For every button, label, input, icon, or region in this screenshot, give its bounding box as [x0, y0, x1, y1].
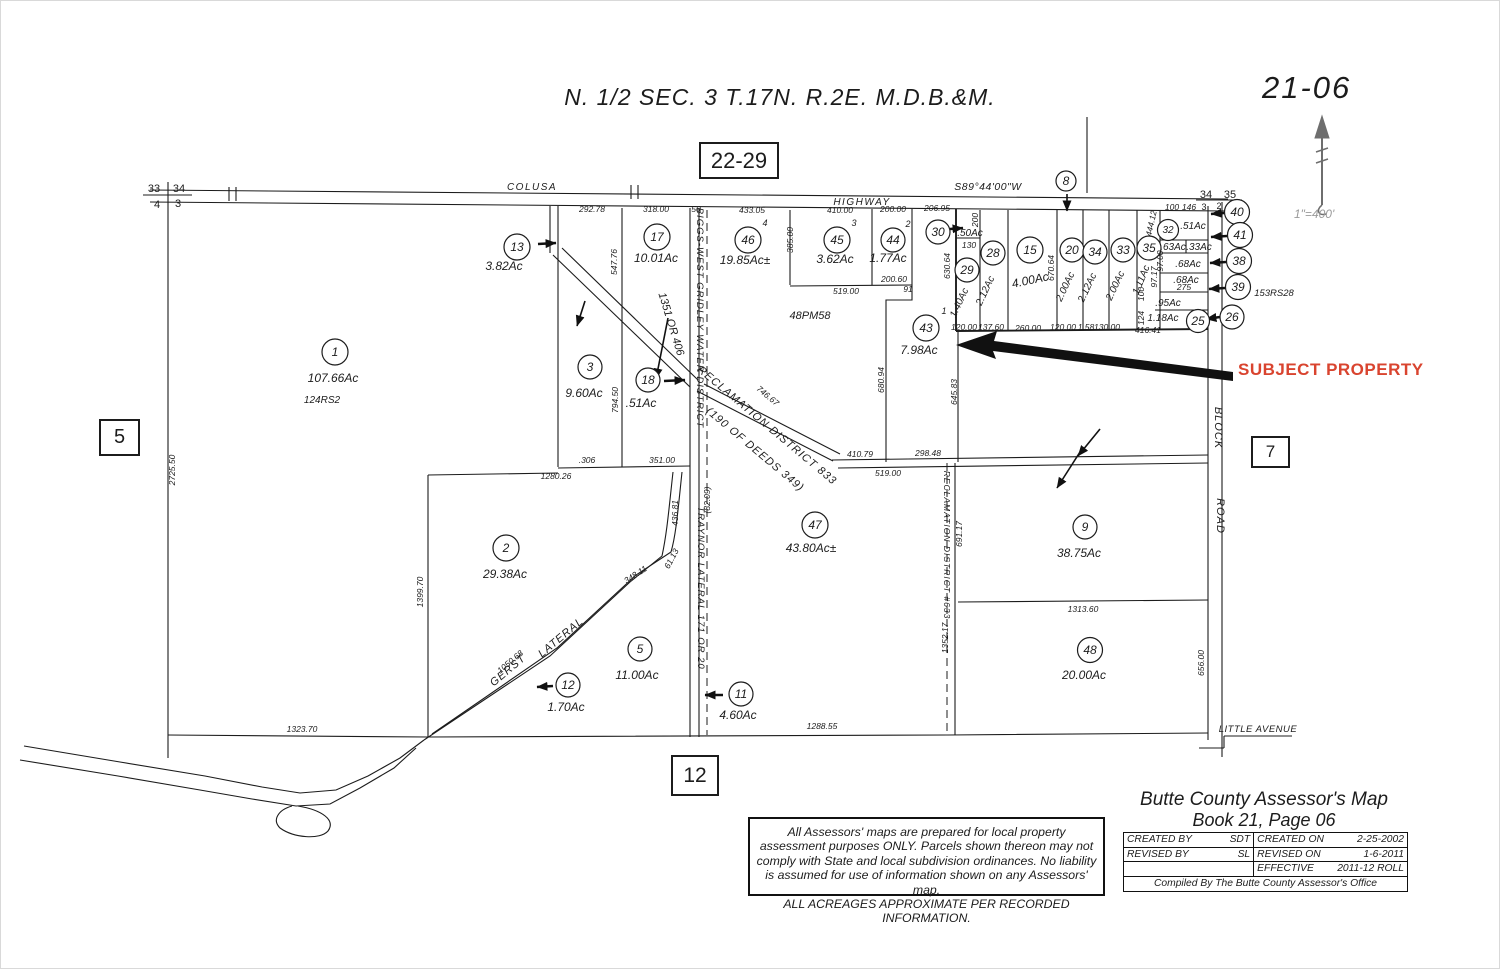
svg-text:.51Ac: .51Ac [626, 396, 657, 410]
rd633-label: RECLAMATION DISTRICT #633 [942, 471, 952, 620]
acreage-label: .33Ac [1186, 242, 1212, 253]
svg-text:680.94: 680.94 [876, 367, 886, 393]
svg-text:1288.55: 1288.55 [807, 721, 838, 731]
svg-text:25: 25 [1190, 314, 1205, 328]
svg-text:91: 91 [903, 284, 913, 294]
traynor-lateral-label: TRAYNOR LATERAL 171 OR 20 [695, 506, 706, 669]
svg-text:1: 1 [941, 306, 946, 316]
disclaimer-line: All Assessors' maps are prepared for loc… [750, 825, 1103, 839]
svg-text:746.67: 746.67 [755, 384, 782, 409]
parcel-48: 48 20.00Ac [1061, 638, 1106, 683]
parcel-41: 41 [1228, 223, 1253, 248]
svg-text:130: 130 [962, 240, 976, 250]
book-page-title: Book 21, Page 06 [1108, 810, 1420, 831]
arrow-to-parcel-18 [664, 380, 685, 381]
svg-text:3.62Ac: 3.62Ac [816, 252, 853, 266]
svg-text:519.00: 519.00 [833, 286, 859, 296]
svg-text:120.00: 120.00 [951, 322, 977, 332]
svg-text:3: 3 [175, 198, 181, 210]
subject-property-label: SUBJECT PROPERTY [1238, 360, 1438, 380]
svg-text:100: 100 [1136, 287, 1146, 301]
svg-text:318.00: 318.00 [643, 204, 669, 214]
canal-flow-arrow-1 [577, 301, 585, 326]
svg-text:3: 3 [851, 218, 856, 228]
road-label-block: BLOCK [1212, 407, 1224, 449]
arrow-to-parcel-12 [537, 686, 553, 687]
svg-text:1352.17: 1352.17 [940, 622, 950, 653]
svg-text:691.17: 691.17 [954, 521, 964, 547]
parcel-2: 2 29.38Ac [482, 535, 527, 581]
revised-by-value: SL [1238, 848, 1251, 862]
assessor-map-page: COLUSA HIGHWAY S89°44'00"W BLOCK ROAD LI… [0, 0, 1500, 969]
svg-text:547.76: 547.76 [609, 249, 619, 275]
svg-text:38.75Ac: 38.75Ac [1057, 546, 1101, 560]
svg-text:1.77Ac: 1.77Ac [869, 251, 906, 265]
arrow-to-parcel-41 [1211, 236, 1227, 237]
biggs-ref-label: 1351 OR 406 [656, 291, 687, 358]
svg-text:298.48: 298.48 [914, 448, 941, 458]
svg-text:43: 43 [919, 321, 933, 335]
svg-text:9: 9 [1082, 520, 1089, 534]
parcel-15: 15 4.00Ac [1010, 237, 1049, 291]
pointer-arrows [537, 194, 1227, 695]
svg-text:32: 32 [1162, 225, 1174, 236]
svg-text:1.40Ac: 1.40Ac [948, 287, 971, 320]
svg-text:1.70Ac: 1.70Ac [547, 700, 584, 714]
dimension-labels: 292.78 318.00 50 433.05 410.00 200.00 20… [167, 202, 1206, 734]
subject-property-arrow [956, 331, 1233, 381]
parcel-1: 1 107.66Ac [308, 339, 359, 385]
road-label-road: ROAD [1214, 498, 1226, 534]
svg-text:2.00Ac: 2.00Ac [1104, 270, 1128, 304]
arrow-to-parcel-38 [1210, 262, 1226, 263]
note-124rs2: 124RS2 [304, 395, 341, 406]
adjacent-map-ref-right: 7 [1251, 436, 1290, 468]
svg-text:10.01Ac: 10.01Ac [634, 251, 678, 265]
svg-text:4.60Ac: 4.60Ac [719, 708, 756, 722]
svg-text:97.00: 97.00 [1155, 250, 1165, 272]
svg-text:43.80Ac±: 43.80Ac± [786, 541, 837, 555]
svg-text:34: 34 [1200, 189, 1212, 201]
svg-text:275: 275 [1176, 282, 1191, 292]
svg-text:.306: .306 [579, 455, 596, 465]
bearing-label: S89°44'00"W [954, 181, 1022, 193]
svg-text:2: 2 [502, 541, 510, 555]
svg-text:100: 100 [1165, 202, 1179, 212]
svg-text:4: 4 [762, 218, 767, 228]
svg-text:12: 12 [561, 678, 575, 692]
svg-text:.51Ac: .51Ac [1180, 221, 1206, 232]
svg-text:3.82Ac: 3.82Ac [485, 259, 522, 273]
parcel-38: 38 [1227, 249, 1252, 274]
svg-text:107.66Ac: 107.66Ac [308, 371, 359, 385]
svg-text:433.05: 433.05 [739, 205, 765, 215]
revised-by-label: REVISED BY [1127, 848, 1189, 862]
svg-text:410.79: 410.79 [847, 449, 873, 459]
disclaimer-line: is assumed for use of information shown … [750, 868, 1103, 897]
note-153rs28: 153RS28 [1254, 288, 1294, 299]
svg-text:1313.60: 1313.60 [1068, 604, 1099, 614]
svg-text:33: 33 [1116, 243, 1130, 257]
road-marker-8: 8 [1056, 171, 1076, 191]
created-on-label: CREATED ON [1257, 833, 1324, 847]
svg-text:28: 28 [985, 246, 1000, 260]
svg-text:2: 2 [904, 219, 910, 229]
county-map-title: Butte County Assessor's Map [1108, 789, 1420, 810]
revised-on-value: 1-6-2011 [1364, 848, 1404, 862]
svg-text:34: 34 [173, 183, 185, 195]
parcel-39: 39 [1226, 275, 1251, 300]
parcel-46: 46 4 19.85Ac± [720, 218, 771, 267]
sheet-number: 21-06 [1262, 70, 1351, 106]
disclaimer-line: ALL ACREAGES APPROXIMATE PER RECORDED IN… [750, 897, 1103, 926]
adjacent-map-ref-top: 22-29 [699, 142, 779, 179]
parcel-32: 32 .51Ac [1158, 220, 1206, 241]
svg-text:47: 47 [808, 518, 823, 532]
parcel-17: 17 10.01Ac [634, 224, 678, 265]
svg-text:35: 35 [1142, 241, 1156, 255]
svg-text:50: 50 [691, 204, 701, 214]
svg-text:206.95: 206.95 [923, 203, 950, 213]
svg-text:416.41: 416.41 [1135, 325, 1161, 335]
parcel-13: 13 3.82Ac [485, 234, 530, 273]
note-48pm58: 48PM58 [790, 310, 832, 322]
svg-text:670.64: 670.64 [1046, 255, 1056, 281]
effective-value: 2011-12 ROLL [1337, 862, 1404, 876]
svg-text:34: 34 [1088, 245, 1102, 259]
scale-label: 1"=400' [1294, 207, 1334, 221]
svg-text:200.00: 200.00 [879, 204, 906, 214]
svg-text:29.38Ac: 29.38Ac [482, 567, 527, 581]
disclaimer-box: All Assessors' maps are prepared for loc… [748, 817, 1105, 896]
acreage-label: .68Ac [1175, 259, 1201, 270]
effective-label: EFFECTIVE [1257, 862, 1314, 876]
arrow-to-parcel-13 [538, 243, 556, 244]
disclaimer-line: assessment purposes ONLY. Parcels shown … [750, 839, 1103, 853]
svg-text:124: 124 [1136, 311, 1146, 325]
parcel-18: 18 .51Ac [626, 368, 660, 410]
svg-text:2.12Ac: 2.12Ac [1076, 272, 1100, 306]
svg-text:.50Ac: .50Ac [957, 228, 983, 239]
rd833-label: RECLAMATION DISTRICT 833 [695, 364, 839, 487]
flow-arrow-parcel-9a [1078, 429, 1100, 456]
disclaimer-line: comply with State and local subdivision … [750, 854, 1103, 868]
svg-text:38: 38 [1232, 254, 1246, 268]
parcel-29: 29 1.40Ac [948, 258, 979, 319]
svg-text:645.83: 645.83 [949, 379, 959, 405]
north-arrow-icon [1315, 116, 1329, 214]
svg-text:2725.50: 2725.50 [167, 454, 177, 486]
svg-text:1.58: 1.58 [1078, 322, 1095, 332]
svg-text:436.81: 436.81 [670, 500, 680, 526]
parcel-3: 3 9.60Ac [565, 355, 602, 400]
arrow-to-parcel-39 [1209, 288, 1225, 289]
biggs-canal-label: BIGGS-WEST GRIDLEY WATER DISTRICT [694, 208, 705, 429]
svg-text:292.78: 292.78 [578, 204, 605, 214]
svg-text:.95Ac: .95Ac [1155, 298, 1181, 309]
svg-text:18: 18 [641, 373, 655, 387]
parcel-44: 44 2 1.77Ac [869, 219, 910, 265]
title-block-table: CREATED BY SDT CREATED ON 2-25-2002 REVI… [1123, 832, 1408, 892]
parcel-12: 12 1.70Ac [547, 673, 584, 714]
title-block-heading: Butte County Assessor's Map Book 21, Pag… [1108, 789, 1420, 831]
svg-text:19.85Ac±: 19.85Ac± [720, 253, 771, 267]
svg-text:8: 8 [1063, 174, 1070, 188]
road-label-little-avenue: LITTLE AVENUE [1219, 724, 1298, 735]
arrow-to-parcel-40 [1211, 213, 1224, 214]
parcel-40: 40 [1225, 200, 1250, 225]
svg-text:200.60: 200.60 [880, 274, 907, 284]
creek-lines [20, 740, 424, 837]
svg-text:1280.26: 1280.26 [541, 471, 572, 481]
svg-text:45: 45 [830, 233, 844, 247]
corner-tl: 33 34 4 3 [148, 183, 185, 211]
svg-text:20: 20 [1064, 243, 1079, 257]
svg-text:41: 41 [1233, 228, 1246, 242]
svg-text:30: 30 [931, 225, 945, 239]
svg-text:29: 29 [959, 263, 974, 277]
svg-text:1399.70: 1399.70 [415, 576, 425, 607]
svg-text:120.00: 120.00 [1050, 322, 1076, 332]
parcel-43: 43 1 7.98Ac [900, 306, 946, 357]
svg-text:444.12: 444.12 [1143, 209, 1158, 237]
svg-text:7.98Ac: 7.98Ac [900, 343, 937, 357]
svg-text:44: 44 [886, 233, 900, 247]
created-by-label: CREATED BY [1127, 833, 1192, 847]
adjacent-map-ref-left: 5 [99, 419, 140, 456]
svg-text:4: 4 [154, 199, 160, 211]
svg-text:137.60: 137.60 [978, 322, 1004, 332]
svg-text:40: 40 [1230, 205, 1244, 219]
svg-text:1.18Ac: 1.18Ac [1147, 313, 1178, 324]
svg-text:15: 15 [1023, 243, 1037, 257]
svg-text:20.00Ac: 20.00Ac [1061, 668, 1106, 682]
svg-text:1323.70: 1323.70 [287, 724, 318, 734]
svg-text:2.12Ac: 2.12Ac [974, 275, 998, 309]
svg-text:130.00: 130.00 [1094, 322, 1120, 332]
svg-text:519.00: 519.00 [875, 468, 901, 478]
svg-text:794.50: 794.50 [610, 387, 620, 413]
table-row: CREATED BY SDT CREATED ON 2-25-2002 [1124, 833, 1407, 848]
svg-text:146: 146 [1182, 202, 1196, 212]
svg-text:1: 1 [332, 345, 339, 359]
svg-text:11.00Ac: 11.00Ac [615, 668, 658, 682]
table-row: EFFECTIVE 2011-12 ROLL [1124, 862, 1407, 877]
svg-text:26: 26 [1224, 310, 1239, 324]
svg-text:46: 46 [741, 233, 755, 247]
svg-text:656.00: 656.00 [1196, 650, 1206, 676]
svg-text:2: 2 [1216, 201, 1221, 211]
svg-text:39: 39 [1231, 280, 1245, 294]
svg-text:385.00: 385.00 [785, 227, 795, 253]
svg-text:11: 11 [735, 687, 747, 701]
created-by-value: SDT [1230, 833, 1251, 847]
svg-text:410.00: 410.00 [827, 205, 853, 215]
adjacent-map-ref-bottom: 12 [671, 755, 719, 796]
svg-text:351.00: 351.00 [649, 455, 675, 465]
svg-text:61.13: 61.13 [662, 547, 681, 571]
svg-text:3: 3 [587, 360, 594, 374]
svg-text:48: 48 [1083, 643, 1097, 657]
parcel-9: 9 38.75Ac [1057, 515, 1101, 560]
compiled-by-note: Compiled By The Butte County Assessor's … [1124, 877, 1407, 892]
parcel-11: 11 4.60Ac [719, 682, 756, 722]
svg-text:17: 17 [650, 230, 665, 244]
parcel-33: 33 2.00Ac [1104, 238, 1135, 303]
svg-text:9.60Ac: 9.60Ac [565, 386, 602, 400]
svg-text:630.64: 630.64 [942, 253, 952, 279]
svg-text:348.11: 348.11 [622, 563, 649, 585]
gerst-label-2: LATERAL [536, 615, 586, 660]
svg-text:5: 5 [637, 642, 644, 656]
svg-text:(82.09): (82.09) [702, 486, 712, 513]
road-label-colusa: COLUSA [507, 182, 557, 193]
created-on-value: 2-25-2002 [1357, 833, 1404, 847]
svg-text:13: 13 [510, 240, 524, 254]
svg-text:33: 33 [148, 183, 160, 195]
parcel-5: 5 11.00Ac [615, 637, 658, 682]
table-row: REVISED BY SL REVISED ON 1-6-2011 [1124, 848, 1407, 863]
svg-text:4.00Ac: 4.00Ac [1010, 269, 1049, 290]
svg-text:3: 3 [1201, 202, 1206, 212]
svg-text:260.00: 260.00 [1014, 323, 1041, 333]
parcel-45: 45 3 3.62Ac [816, 218, 856, 266]
parcel-47: 47 43.80Ac± [786, 512, 837, 555]
revised-on-label: REVISED ON [1257, 848, 1321, 862]
map-title: N. 1/2 SEC. 3 T.17N. R.2E. M.D.B.&M. [560, 84, 1000, 111]
svg-text:200: 200 [970, 213, 980, 228]
